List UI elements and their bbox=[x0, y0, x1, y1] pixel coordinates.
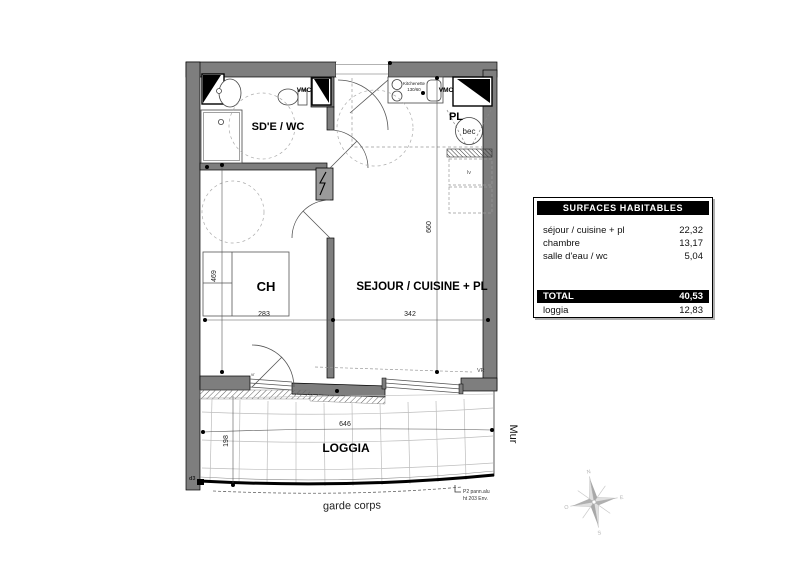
compass-icon: N S E O bbox=[559, 464, 630, 541]
kitchenette-label: Kitchenette bbox=[403, 81, 426, 86]
label-bec: bec bbox=[463, 127, 476, 136]
loggia-value: 12,83 bbox=[679, 304, 703, 318]
table-row: séjour / cuisine + pl 22,32 bbox=[543, 224, 703, 237]
dim-469: 469 bbox=[211, 270, 218, 282]
surfaces-table: SURFACES HABITABLES séjour / cuisine + p… bbox=[533, 197, 713, 318]
table-total-row: TOTAL 40,53 bbox=[537, 290, 709, 303]
row-value: 13,17 bbox=[679, 237, 703, 250]
row-label: salle d'eau / wc bbox=[543, 250, 608, 263]
window-ch bbox=[250, 379, 292, 390]
kitchenette: Kitchenette 130/60 bbox=[388, 77, 443, 103]
label-ch: CH bbox=[257, 279, 276, 294]
compass-o: O bbox=[564, 504, 570, 511]
bathroom-door bbox=[330, 130, 368, 168]
row-value: 5,04 bbox=[685, 250, 704, 263]
shaft-icon-wc bbox=[312, 78, 331, 105]
entrance-opening bbox=[336, 62, 388, 77]
table-row: chambre 13,17 bbox=[543, 237, 703, 250]
mur-label: Mur bbox=[507, 425, 519, 444]
dim-198: 198 bbox=[223, 435, 230, 447]
label-sejour: SEJOUR / CUISINE + PL bbox=[356, 281, 487, 293]
table-row: salle d'eau / wc 5,04 bbox=[543, 250, 703, 263]
kitchenette-size-label: 130/60 bbox=[407, 87, 421, 92]
loggia-label: loggia bbox=[543, 304, 568, 318]
surfaces-table-title: SURFACES HABITABLES bbox=[537, 201, 709, 215]
row-label: chambre bbox=[543, 237, 580, 250]
garde-corps-dashed bbox=[213, 487, 462, 493]
garde-corps-label: garde corps bbox=[323, 499, 382, 512]
total-label: TOTAL bbox=[543, 290, 574, 303]
p2-note-line1: P2 pann.alu bbox=[463, 489, 490, 495]
row-value: 22,32 bbox=[679, 224, 703, 237]
dim-342: 342 bbox=[404, 311, 416, 318]
vr-label: VR bbox=[477, 368, 485, 374]
vr-dashed-line bbox=[315, 367, 472, 372]
p2-note-line2: ht 203 Env. bbox=[463, 496, 488, 502]
compass-n: N bbox=[586, 469, 591, 476]
vmc-label-wc: VMC bbox=[297, 87, 312, 94]
dim-646: 646 bbox=[339, 421, 351, 428]
row-label: séjour / cuisine + pl bbox=[543, 224, 625, 237]
shower-icon bbox=[201, 110, 242, 163]
table-loggia-row: loggia 12,83 bbox=[537, 303, 709, 318]
bay-window-sejour bbox=[382, 378, 463, 394]
vr-small-label: vr bbox=[251, 372, 255, 377]
entrance-door bbox=[338, 80, 388, 130]
label-pl: PL bbox=[449, 111, 463, 123]
dim-660: 660 bbox=[426, 221, 433, 233]
compass-e: E bbox=[619, 495, 624, 502]
floorplan-page: Kitchenette 130/60 bbox=[0, 0, 800, 566]
compass-s: S bbox=[597, 530, 602, 537]
lv-label: lv bbox=[467, 170, 471, 176]
vmc-label-kitchen: VMC bbox=[439, 87, 454, 94]
d3-label: d3 bbox=[189, 476, 195, 482]
electrical-panel-icon bbox=[316, 168, 333, 200]
bed-icon bbox=[203, 252, 289, 316]
total-value: 40,53 bbox=[679, 290, 703, 303]
bedroom-door bbox=[292, 200, 330, 238]
label-sdewc: SD'E / WC bbox=[252, 121, 305, 133]
label-loggia: LOGGIA bbox=[322, 441, 370, 455]
shaft-icon-top-right bbox=[453, 77, 492, 106]
dim-283: 283 bbox=[258, 311, 270, 318]
